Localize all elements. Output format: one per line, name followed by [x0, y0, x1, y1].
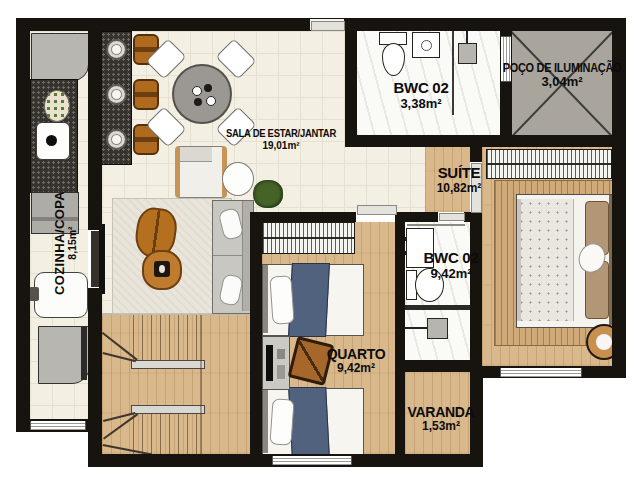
sofa-cushion-seam	[213, 255, 243, 256]
dining-table	[172, 64, 232, 124]
room-area-cozinha: 8,15m²	[67, 191, 79, 295]
wall-kitchen-divider-upper	[88, 18, 102, 230]
cooktop-burner	[46, 135, 57, 146]
room-name-bwc-mid: BWC 02	[424, 250, 479, 267]
wall-suite-left-lower	[470, 212, 482, 366]
cooktop	[36, 122, 70, 160]
sofa-pillow	[218, 207, 245, 241]
bedroom-wardrobe	[262, 222, 355, 254]
fruit-bowl	[44, 90, 70, 122]
wall-left	[16, 18, 30, 432]
room-name-suite: SUÍTE	[437, 165, 482, 182]
room-label-poco: POÇO DE ILUMINAÇÃO 3,04m²	[491, 61, 632, 90]
stair-treads-upper	[133, 315, 201, 360]
armchair-backrest	[180, 147, 212, 162]
side-table	[222, 162, 254, 196]
sink-drain	[421, 40, 432, 51]
room-name-poco: POÇO DE ILUMINAÇÃO	[503, 61, 622, 75]
place-setting	[106, 39, 127, 60]
wall-bedroom-top	[250, 212, 356, 222]
floor-plan: COZINHA/COPA 8,15m² SALA DE ESTAR/JANTAR…	[0, 0, 640, 480]
room-label-sala: SALA DE ESTAR/JANTAR 19,01m²	[220, 128, 342, 151]
bar-stool	[133, 79, 159, 110]
room-area-poco: 3,04m²	[491, 75, 632, 89]
table-setting	[192, 86, 202, 96]
place-setting	[106, 84, 127, 105]
room-label-bwc-top: BWC 02 3,38m²	[394, 80, 449, 111]
kitchen-door-leaf	[91, 231, 99, 287]
room-label-quarto: QUARTO 9,42m²	[327, 347, 386, 376]
wall-balcony-top	[395, 360, 482, 372]
bathroom-sink	[412, 32, 440, 58]
bed-pillow	[269, 275, 294, 324]
room-name-varanda: VARANDA	[408, 405, 475, 420]
vanity-mirror-line	[407, 224, 465, 226]
room-area-bwc-mid: 9,42m²	[424, 266, 479, 280]
shower-divider-wall	[403, 305, 472, 310]
window-kitchen	[30, 421, 86, 430]
sink-faucet	[29, 287, 39, 301]
tv-panel	[99, 224, 105, 294]
wall-bwc-bottom	[345, 135, 626, 147]
shower-head	[458, 43, 477, 64]
sofa-pillow	[218, 273, 244, 307]
room-area-bwc-top: 3,38m²	[394, 96, 449, 110]
place-setting	[106, 129, 127, 150]
shower-head	[427, 318, 448, 339]
washing-machine-edge	[81, 327, 87, 380]
tray	[154, 261, 170, 277]
wall-kitchen-divider-lower	[88, 288, 102, 467]
suite-wardrobe	[486, 149, 612, 179]
tray-item	[159, 265, 165, 273]
room-area-varanda: 1,53m²	[408, 420, 475, 433]
monitor	[266, 345, 273, 381]
room-label-varanda: VARANDA 1,53m²	[408, 405, 475, 434]
sofa	[212, 200, 254, 314]
round-pouf-top	[596, 334, 612, 350]
wall-bedroom-right	[395, 212, 405, 454]
shower-partition	[452, 31, 454, 115]
bwc-mid-door-leaf	[439, 213, 465, 221]
pouf-with-tray	[142, 250, 182, 290]
room-name-sala: SALA DE ESTAR/JANTAR	[226, 128, 336, 140]
entrance-door-leaf	[311, 21, 345, 31]
wall-bwc-mid-top	[405, 212, 438, 222]
table-setting	[206, 96, 216, 106]
table-setting	[194, 98, 202, 106]
room-label-suite: SUÍTE 10,82m²	[437, 165, 482, 195]
bed-headboard	[263, 389, 268, 453]
stair-treads-lower	[133, 412, 201, 454]
bed-headboard	[263, 265, 268, 333]
bed-pillow	[269, 398, 294, 445]
bedroom-door-leaf	[357, 205, 397, 215]
room-name-quarto: QUARTO	[327, 347, 386, 362]
suite-bed	[516, 194, 616, 328]
desk-item	[277, 349, 285, 359]
room-label-bwc-mid: BWC 02 9,42m²	[424, 250, 479, 281]
table-setting	[204, 84, 212, 92]
room-area-sala: 19,01m²	[220, 139, 342, 150]
room-area-suite: 10,82m²	[437, 182, 482, 195]
stair-stringer-line	[200, 315, 202, 454]
bed-blanket-blue	[288, 263, 330, 337]
desk	[262, 336, 290, 390]
room-name-cozinha: COZINHA/COPA	[53, 191, 67, 295]
plant	[253, 180, 283, 208]
refrigerator	[31, 33, 89, 81]
window-bedroom	[272, 456, 352, 465]
room-label-cozinha: COZINHA/COPA 8,15m²	[53, 191, 79, 295]
suite-bed-blanket	[517, 199, 574, 321]
single-bed	[262, 388, 364, 456]
stair-railing	[131, 405, 205, 414]
wall-bwc-top-left	[345, 18, 357, 147]
wall-suite-left-upper	[470, 147, 482, 162]
stair-railing	[131, 360, 205, 369]
keyboard	[277, 365, 285, 379]
armchair	[175, 146, 227, 198]
wall-bedroom-left	[250, 212, 262, 454]
bed-blanket-blue	[288, 387, 330, 457]
washing-machine	[38, 326, 90, 384]
single-bed	[262, 264, 364, 336]
room-area-quarto: 9,42m²	[327, 362, 386, 375]
room-name-bwc-top: BWC 02	[394, 80, 449, 97]
window-suite	[500, 368, 582, 377]
shower-arm	[405, 327, 429, 329]
